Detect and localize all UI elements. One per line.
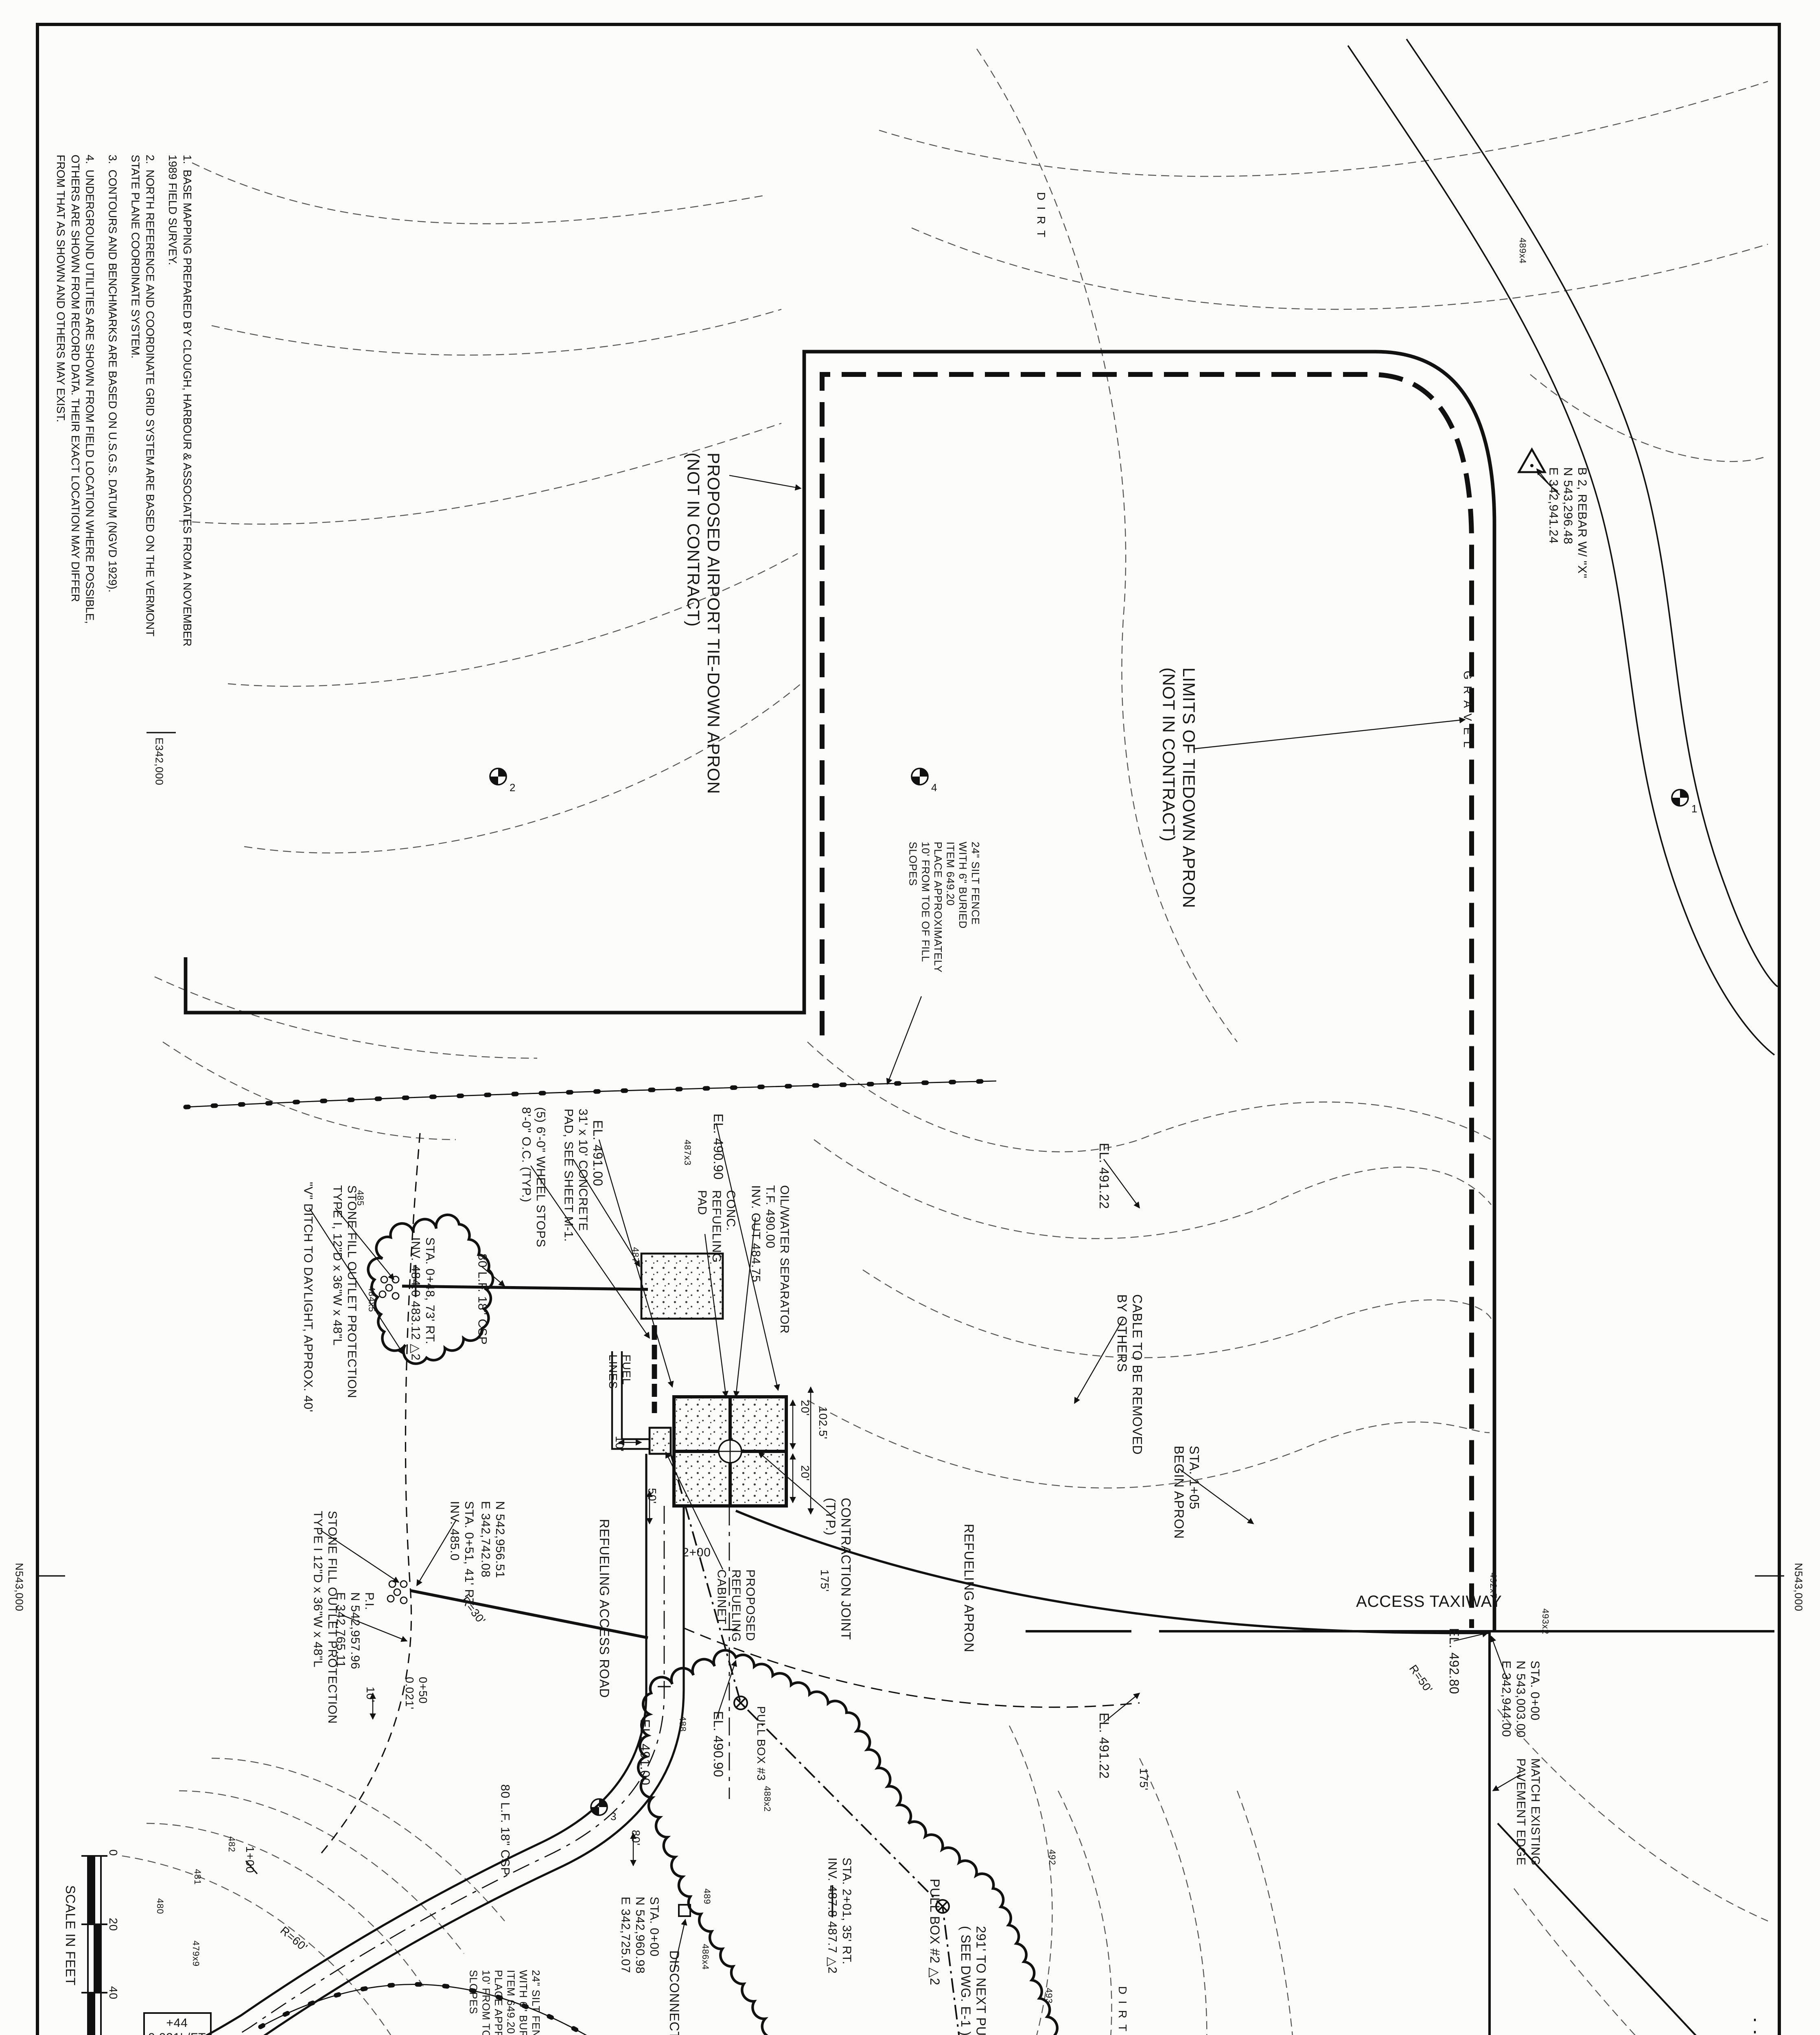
label-sta-0-48: STA. 0+48, 73' RT.INV. 484.0 483.12 △2 — [407, 1237, 436, 1361]
label-coord-outlet: N 542,956.51E 342,742.08 — [477, 1501, 506, 1578]
label-sta-1-05: STA. 1+05BEGIN APRON — [1170, 1446, 1201, 1539]
concrete-pad-31x10 — [641, 1254, 723, 1319]
label-dirt-s: DIRT — [1113, 1986, 1127, 2035]
label-cable-removed: CABLE TO BE REMOVEDBY OTHERS — [1113, 1294, 1144, 1455]
contour-492: 492 — [1045, 1849, 1056, 1865]
spot-479: 479x9 — [189, 1941, 199, 1967]
refueling-cabinet-symbol — [650, 1428, 671, 1454]
revision-cloud-1 — [638, 1650, 1081, 2035]
label-el-491-00-n: EL. 491.00 — [589, 1120, 605, 1186]
contour-487: 487 — [628, 1247, 639, 1263]
grid-e342000: E342,000 — [151, 737, 164, 786]
label-match-existing: MATCH EXISTINGPAVEMENT EDGE — [1512, 1758, 1541, 1866]
site-plan-linework — [0, 0, 1820, 2035]
dim-175-a: 175' — [816, 1569, 829, 1592]
label-el-490-90-n: EL. 490.90 — [710, 1114, 725, 1180]
contour-481: 481 — [190, 1869, 201, 1885]
label-el-490-90-s: EL. 490.90 — [710, 1711, 725, 1777]
dim-20-a: 20' — [796, 1400, 809, 1416]
contour-488: 488 — [676, 1716, 686, 1732]
label-fuel-lines: FUELLINES — [604, 1354, 631, 1389]
spot-486: 486x4 — [698, 1944, 709, 1970]
dim-20-b: 20' — [796, 1465, 809, 1481]
scale-tick-0: 0 — [104, 1849, 118, 1856]
dim-80: 80' — [627, 1830, 640, 1846]
access-taxiway-lines — [1026, 1631, 1774, 2035]
label-csp-north: 80 L.F. 18" CSP — [474, 1254, 488, 1345]
label-el-491-22-n: EL. 491.22 — [1096, 1143, 1111, 1209]
label-sta-2-01: STA. 2+01, 35' RT.INV. 487.8 487.7 △2 — [824, 1858, 853, 1974]
apron-edge-line — [186, 352, 1494, 1631]
contour-480: 480 — [153, 1898, 164, 1914]
dim-102-5: 102.5' — [814, 1407, 827, 1439]
scale-tick-40: 40 — [104, 1986, 118, 2000]
note-item-3: 3. CONTOURS AND BENCHMARKS ARE BASED ON … — [103, 155, 117, 679]
label-refueling-cabinet: PROPOSEDREFUELINGCABINET — [713, 1569, 756, 1642]
spot-488: 488x2 — [760, 1786, 771, 1812]
label-concrete-pad-31x10: 31' x 10' CONCRETEPAD, SEE SHEET M-1. — [560, 1109, 589, 1242]
spot-493: 493x2 — [1538, 1608, 1549, 1635]
point-1: 1 — [1691, 804, 1697, 817]
label-silt-fence-north: 24" SILT FENCEWITH 6" BURIEDITEM 649.20P… — [905, 842, 980, 973]
label-disconnect-switch: DISCONNECT SWITCH △1 — [666, 1950, 681, 2035]
drawing-sheet: 1. BASE MAPPING PREPARED BY CLOUGH, HARB… — [0, 0, 1820, 2035]
label-oil-water-separator: OIL/WATER SEPARATORT.F. 490.00INV. OUT 4… — [747, 1185, 790, 1334]
label-access-taxiway: ACCESS TAXIWAY — [1356, 1594, 1502, 1613]
label-plus-44: +440.021' /FT — [143, 2012, 211, 2035]
grid-n543000-w: N543,000 — [11, 1563, 24, 1611]
label-contraction-joint: CONTRACTION JOINT(TYP.) — [822, 1498, 853, 1640]
label-el-491-00-s: EL. 491.00 — [637, 1719, 652, 1786]
label-gravel: GRAVEL — [1459, 671, 1472, 754]
label-silt-fence-south: 24" SILT FENCEWITH 6" BURIEDITEM 649.20P… — [466, 1970, 540, 2035]
dim-50: 50' — [643, 1488, 656, 1504]
contour-489: 489 — [700, 1888, 711, 1904]
label-scale-in-feet: SCALE IN FEET — [62, 1885, 77, 1986]
contour-485: 485 — [353, 1190, 364, 1206]
label-pull-box-3: PULL BOX #3 — [752, 1706, 766, 1781]
label-dirt-n: DIRT — [1032, 192, 1046, 243]
label-wheel-stops: (5) 6'-0" WHEEL STOPS8'-0" O.C. (TYP.) — [518, 1107, 547, 1247]
dim-175-b: 175' — [1135, 1768, 1148, 1790]
dim-10-b: 10' — [361, 1687, 375, 1702]
label-refueling-apron-cl: REFUELING APRON — [960, 1524, 976, 1652]
label-sta-2-00: 2+00 — [682, 1547, 711, 1561]
general-notes: 1. BASE MAPPING PREPARED BY CLOUGH, HARB… — [42, 155, 192, 679]
label-benchmark-2: B 2, REBAR W/ "X"N 543,296.48E 342,941.2… — [1545, 467, 1588, 578]
label-sta-0-51: STA. 0+51, 41' RTINV. 485.0 — [446, 1501, 475, 1606]
scale-bar — [81, 1856, 107, 2035]
label-sta-0-50: 0+500.021' — [400, 1677, 427, 1709]
grid-n543000-e: N543,000 — [1791, 1563, 1803, 1611]
contour-493: 493 — [1042, 1988, 1052, 2004]
spot-492: 492x7 — [1486, 1573, 1497, 1599]
label-pi: P.I.N 542,957.96E 342,765.11 — [332, 1592, 375, 1670]
label-v-ditch: "V" DITCH TO DAYLIGHT, APPROX. 40' — [300, 1182, 314, 1412]
dim-10-a: 10' — [610, 1436, 624, 1452]
spot-484: 484x5 — [365, 1286, 375, 1312]
point-4: 4 — [931, 783, 937, 796]
scale-tick-20: 20 — [104, 1918, 118, 1931]
label-sta-1-00: 1+00 — [241, 1846, 254, 1873]
label-csp-south: 80 L.F. 18" CSP — [497, 1784, 511, 1875]
point-2: 2 — [510, 783, 516, 796]
note-item-2: 2. NORTH REFERENCE AND COORDINATE GRID S… — [125, 155, 155, 679]
control-points — [490, 768, 1688, 2035]
label-refueling-access-road: REFUELING ACCESS ROAD — [596, 1519, 611, 1698]
label-sta-0-00-taxiway: STA. 0+00N 543,003.00E 342,944.00 — [1498, 1661, 1541, 1738]
point-3: 3 — [610, 1812, 617, 1825]
note-item-4: 4. UNDERGROUND UTILITIES ARE SHOWN FROM … — [50, 155, 94, 679]
leader-lines — [309, 469, 1693, 2035]
pull-box-3-symbol — [734, 1696, 747, 1709]
spot-487: 487x3 — [680, 1140, 691, 1166]
label-conc-refueling-pad: CONC.REFUELINGPAD — [693, 1190, 737, 1263]
label-stone-fill-north: STONE FILL OUTLET PROTECTIONTYPE I, 12"D… — [329, 1185, 358, 1398]
label-sta-0-00-road: STA. 0+00N 542,960.98E 342,725.07 — [617, 1897, 660, 1974]
label-proposed-apron: PROPOSED AIRPORT TIE-DOWN APRON(NOT IN C… — [682, 453, 722, 794]
note-item-1: 1. BASE MAPPING PREPARED BY CLOUGH, HARB… — [162, 155, 192, 679]
label-to-next-pull-box: 291' TO NEXT PULL BOX( SEE DWG. E-1 ) — [957, 1926, 988, 2035]
contour-482: 482 — [225, 1836, 235, 1852]
label-el-492-80: EL. 492.80 — [1446, 1628, 1461, 1694]
spot-489: 489x4 — [1516, 238, 1526, 264]
label-pull-box-2: PULL BOX #2 △2 — [926, 1879, 942, 1985]
label-limits-apron: LIMITS OF TIEDOWN APRON(NOT IN CONTRACT) — [1157, 667, 1198, 908]
label-el-491-22-s: EL. 491.22 — [1096, 1713, 1111, 1779]
concrete-refueling-pad — [674, 1397, 786, 1506]
